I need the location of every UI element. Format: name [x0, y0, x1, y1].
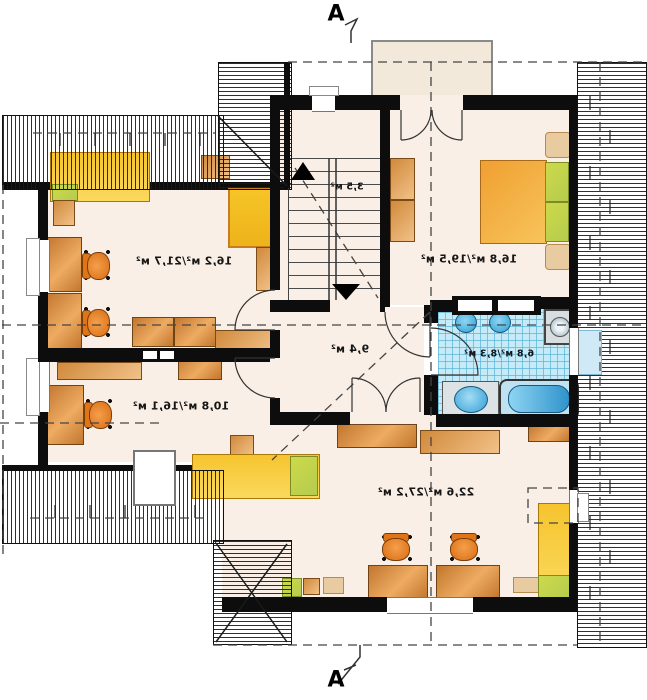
section-line-top [345, 19, 357, 43]
area-label-hall: 9,4 м² [331, 343, 369, 356]
floor-plan: 16,2 м²/21,7 м² 10,8 м²/16,1 м² 16,8 м²/… [0, 0, 647, 700]
door-arc-hall-right [386, 378, 420, 412]
plan-linework [0, 0, 647, 700]
area-label-room-bottom: 22,6 м²/27,2 м² [378, 486, 475, 499]
area-label-stairs: 3,5 м² [330, 182, 363, 193]
section-marker-top: A [327, 2, 344, 27]
section-marker-bottom: A [327, 668, 344, 693]
area-label-bathroom: 6,8 м²/8,3 м² [464, 349, 534, 360]
balcony-door-right-arc [432, 110, 462, 140]
stair-symbols [291, 158, 360, 300]
roof-valley-line [218, 116, 287, 186]
area-label-bedroom: 16,8 м²/19,5 м² [421, 253, 518, 266]
dashed-roof-valley-hall [272, 312, 430, 460]
stairs-up-arrow [291, 162, 315, 180]
dashed-roof-window-outline [528, 488, 578, 523]
area-label-room-bottom-left: 10,8 м²/16,1 м² [133, 400, 230, 413]
door-arc-bedroom [385, 312, 430, 357]
door-arc-room-bottom-left [235, 358, 275, 398]
door-arc-room-top-left [235, 290, 275, 330]
area-label-room-top-left: 16,2 м²/21,7 м² [136, 255, 233, 268]
door-arc-hall-left [352, 378, 386, 412]
balcony-door-left-arc [401, 110, 431, 140]
